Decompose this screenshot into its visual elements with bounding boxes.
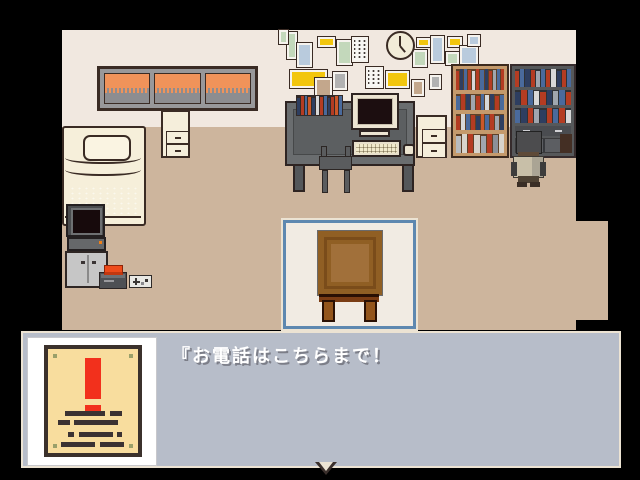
window-pane xyxy=(154,73,200,104)
book-spine xyxy=(521,108,526,123)
book-spine xyxy=(493,70,496,90)
clock-hour-hand xyxy=(399,45,406,52)
book-spine xyxy=(466,114,470,130)
book-spine xyxy=(466,94,470,110)
game-screen: 『お電話はこちらまで！ xyxy=(0,0,640,480)
book-spine xyxy=(515,92,520,105)
poster-panel xyxy=(27,337,157,466)
book-spine xyxy=(567,69,571,87)
book-spine xyxy=(460,69,463,90)
book-spine xyxy=(534,109,539,123)
chair-leg xyxy=(344,170,350,193)
drawer-cabinet xyxy=(416,115,447,158)
book-spine xyxy=(301,96,304,115)
picture-frame xyxy=(413,50,427,67)
vcr-player xyxy=(67,237,106,251)
selection-cursor[interactable] xyxy=(283,220,416,329)
controller-button xyxy=(145,279,148,282)
picture-frame xyxy=(287,32,297,59)
book-spine xyxy=(500,95,504,110)
keyboard xyxy=(352,140,401,157)
book-spine xyxy=(501,69,504,90)
book-spine xyxy=(553,91,558,105)
book-spine xyxy=(328,98,331,115)
bookshelf-light xyxy=(451,64,509,158)
book-spine xyxy=(528,90,533,105)
poster-note xyxy=(366,67,383,88)
exclamation-icon xyxy=(85,358,101,399)
book-spine xyxy=(485,115,489,130)
book-spine xyxy=(335,96,338,115)
monitor-screen xyxy=(357,98,393,125)
book-spine xyxy=(456,71,459,90)
book-spine xyxy=(541,69,545,87)
book-spine xyxy=(531,70,535,87)
book-spine xyxy=(474,135,479,153)
poster-image xyxy=(44,345,142,457)
continue-arrow-inner xyxy=(319,462,333,471)
book-spine xyxy=(534,91,539,105)
book-spine xyxy=(339,96,342,115)
book-spine xyxy=(462,134,467,153)
book-spine xyxy=(456,116,460,130)
desk-leg xyxy=(293,164,305,192)
book-spine xyxy=(471,115,475,130)
book-spine xyxy=(566,92,571,105)
book-spine xyxy=(324,96,327,115)
table-leg xyxy=(364,300,377,322)
book-spine xyxy=(461,114,465,130)
cabinet-drawer xyxy=(422,143,446,158)
nightstand-drawer xyxy=(166,131,189,144)
window-pane xyxy=(104,73,150,104)
nightstand xyxy=(161,110,190,158)
book-spine xyxy=(495,96,499,110)
book-row xyxy=(515,69,571,87)
book-spine xyxy=(490,114,494,130)
book-spine xyxy=(487,134,492,153)
book-spine xyxy=(500,115,504,130)
book-spine xyxy=(480,70,483,90)
book-spine xyxy=(547,90,552,105)
book-spine xyxy=(305,96,308,115)
character-sprite xyxy=(511,130,546,187)
picture-frame xyxy=(279,30,288,44)
computer-monitor xyxy=(351,93,399,130)
book-spine xyxy=(468,134,473,153)
table-leg xyxy=(322,300,335,322)
nightstand-drawer xyxy=(166,144,189,157)
book-spine xyxy=(481,136,486,153)
book-spine xyxy=(464,69,467,90)
picture-frame xyxy=(333,72,347,90)
chair-leg xyxy=(322,170,328,193)
book-spine xyxy=(316,96,319,115)
book-spine xyxy=(312,98,315,115)
poster-note xyxy=(352,37,368,62)
book-spine xyxy=(320,97,323,115)
book-spine xyxy=(525,69,529,87)
book-spine xyxy=(566,110,571,123)
book-spine xyxy=(331,97,334,115)
book-spine xyxy=(476,69,479,90)
book-spine xyxy=(562,70,566,87)
character-hair xyxy=(516,131,542,154)
message-window[interactable]: 『お電話はこちらまで！ xyxy=(21,331,621,468)
book-spine xyxy=(521,90,526,105)
picture-frame xyxy=(460,46,478,65)
book-spine xyxy=(559,108,564,123)
book-spine xyxy=(540,110,545,123)
blanket-line xyxy=(65,162,141,176)
game-controller xyxy=(129,275,152,288)
picture-frame xyxy=(318,37,335,47)
book-spine xyxy=(499,134,504,153)
window-pane xyxy=(205,73,251,104)
wall-clock-icon xyxy=(386,31,415,60)
book-spine xyxy=(497,69,500,90)
message-text: 『お電話はこちらまで！ xyxy=(172,342,392,368)
book-spine xyxy=(490,94,494,110)
book-spine xyxy=(456,96,460,110)
television xyxy=(66,204,105,237)
book-spine xyxy=(536,71,540,87)
red-telephone xyxy=(104,265,123,275)
book-spine xyxy=(481,114,485,130)
picture-frame xyxy=(468,35,480,46)
book-spine xyxy=(476,96,480,110)
book-spine xyxy=(540,92,545,105)
book-spine xyxy=(520,69,524,87)
book-spine xyxy=(493,135,498,153)
cabinet-drawer xyxy=(422,129,446,143)
book-row xyxy=(456,114,504,130)
picture-frame xyxy=(337,40,352,65)
book-row xyxy=(456,94,504,110)
book-spine xyxy=(471,95,475,110)
picture-frame xyxy=(412,80,424,96)
book-row xyxy=(515,108,571,123)
book-spine xyxy=(547,108,552,123)
book-spine xyxy=(557,71,561,87)
book-spine xyxy=(551,69,555,87)
book-spine xyxy=(468,70,471,90)
desk-books xyxy=(296,95,343,116)
book-spine xyxy=(481,94,485,110)
book-spine xyxy=(559,90,564,105)
desk-leg xyxy=(402,164,414,192)
picture-frame xyxy=(386,71,409,88)
picture-frame xyxy=(430,75,441,89)
book-spine xyxy=(495,116,499,130)
picture-frame xyxy=(431,36,444,63)
book-spine xyxy=(461,94,465,110)
picture-frame xyxy=(297,43,312,67)
shelf-open-gap xyxy=(560,134,572,153)
book-spine xyxy=(456,136,461,153)
book-row xyxy=(515,90,571,105)
book-spine xyxy=(308,97,311,115)
book-row xyxy=(456,69,504,90)
book-row xyxy=(456,134,504,153)
book-spine xyxy=(485,95,489,110)
picture-frame xyxy=(417,38,430,47)
book-spine xyxy=(515,110,520,123)
chair-back xyxy=(319,156,352,170)
book-spine xyxy=(472,71,475,90)
window xyxy=(97,66,258,111)
tv-screen xyxy=(71,208,102,235)
monitor-base xyxy=(359,130,390,137)
book-spine xyxy=(297,98,300,115)
book-spine xyxy=(553,109,558,123)
table-sprite xyxy=(317,230,383,296)
book-spine xyxy=(515,71,519,87)
book-spine xyxy=(476,116,480,130)
computer-mouse xyxy=(403,144,415,156)
book-spine xyxy=(485,69,488,90)
power-led xyxy=(99,241,102,244)
book-spine xyxy=(489,71,492,90)
book-spine xyxy=(546,70,550,87)
book-spine xyxy=(528,108,533,123)
